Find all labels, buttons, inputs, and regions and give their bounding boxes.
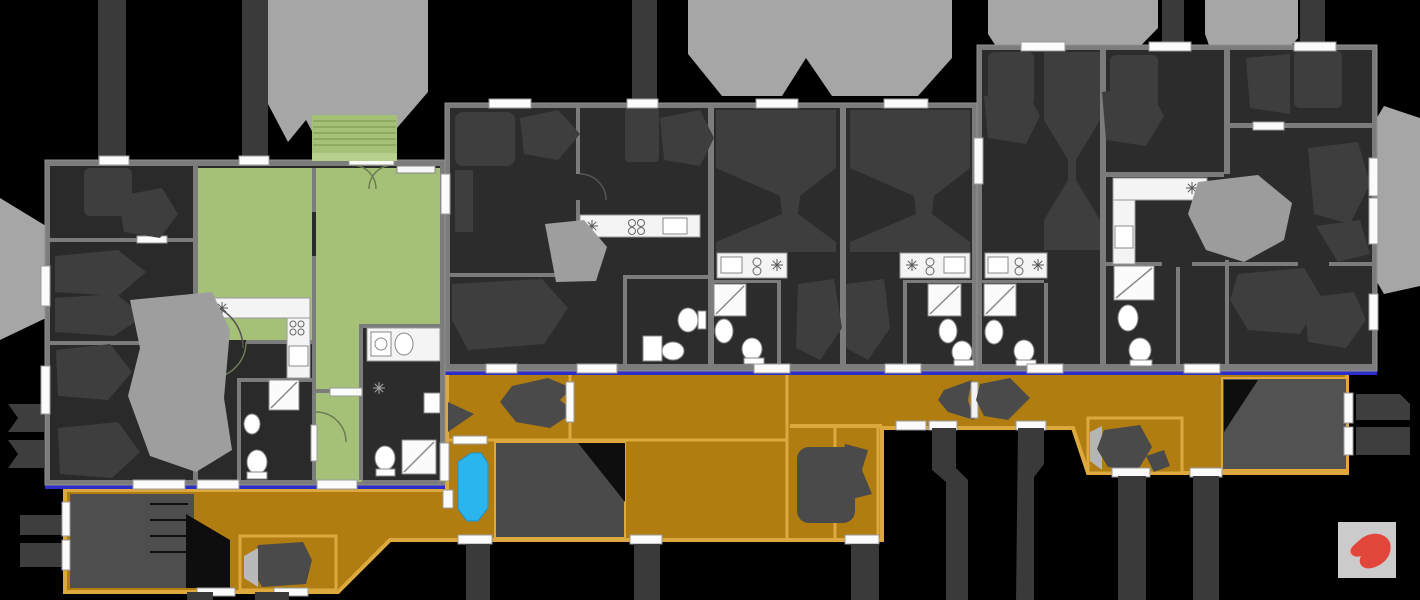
- window: [317, 480, 357, 489]
- wall-seg: [576, 108, 580, 174]
- wall-seg: [1225, 260, 1229, 364]
- balcony-sill: [312, 153, 397, 161]
- window: [489, 99, 531, 108]
- tree-2: [688, 0, 952, 96]
- path-top-5: [1300, 0, 1325, 48]
- wall-seg: [903, 283, 907, 364]
- bed: [625, 108, 659, 162]
- wall-seg: [623, 275, 708, 279]
- window: [197, 480, 239, 489]
- path-top-3: [632, 0, 657, 106]
- path-bottom-6: [932, 428, 968, 600]
- washer: [643, 336, 662, 361]
- window: [1021, 42, 1065, 51]
- deck-window: [896, 421, 926, 430]
- deck-door: [458, 535, 492, 544]
- window: [99, 156, 129, 165]
- wall-seg: [1224, 50, 1230, 174]
- wall-seg: [363, 324, 440, 328]
- window: [1184, 364, 1220, 373]
- toilet-tank: [247, 472, 267, 479]
- toilet-tank: [376, 469, 395, 476]
- wall-cabinet: [424, 393, 440, 413]
- window: [974, 138, 983, 184]
- deck-door: [845, 535, 879, 544]
- window: [884, 99, 928, 108]
- tree-6: [0, 198, 46, 340]
- path-bottom-3: [466, 544, 490, 600]
- path-top-2: [242, 0, 268, 162]
- wall-seg: [1329, 262, 1372, 266]
- deck-door: [453, 436, 487, 444]
- path-bottom-7: [1016, 428, 1044, 600]
- floor-plan-svg: [0, 0, 1420, 600]
- toilet-tank: [698, 311, 706, 329]
- deck-door: [630, 535, 662, 544]
- wall-seg: [903, 280, 975, 283]
- deck-window: [62, 540, 70, 570]
- window: [41, 366, 50, 414]
- wall-seg: [312, 168, 316, 212]
- window: [41, 266, 50, 306]
- window: [1369, 198, 1378, 244]
- window: [1294, 42, 1336, 51]
- deck-window: [1112, 468, 1150, 477]
- wall-seg: [1106, 172, 1224, 177]
- deck-door: [566, 382, 574, 422]
- stub-bottom-left-1: [20, 515, 65, 535]
- path-bottom-9: [1193, 476, 1219, 600]
- grill-blob: [250, 542, 312, 587]
- wall-seg: [50, 238, 193, 242]
- toilet: [678, 308, 698, 332]
- stub-right-1: [1356, 394, 1410, 420]
- wall-seg: [713, 280, 781, 283]
- deck-room-left: [70, 494, 194, 588]
- wall-seg: [777, 283, 781, 364]
- kitchen-sink: [1115, 226, 1133, 248]
- kitchen-sink: [944, 257, 965, 273]
- window: [441, 174, 450, 214]
- window: [1027, 364, 1063, 373]
- door-leaf: [311, 425, 317, 461]
- wall-seg: [1192, 262, 1298, 266]
- toilet-tank: [954, 360, 974, 366]
- fan-icon: [373, 382, 385, 394]
- bed: [1294, 50, 1342, 108]
- path-bottom-5: [851, 544, 879, 600]
- door-leaf: [137, 236, 167, 243]
- window: [627, 99, 658, 108]
- sink: [939, 319, 957, 343]
- window: [1369, 294, 1378, 330]
- shrub-left-1: [8, 404, 44, 432]
- deck-door: [443, 490, 453, 508]
- kitchen-sink: [289, 346, 308, 366]
- shrub-left-2: [8, 440, 44, 468]
- path-bottom-2: [255, 592, 289, 600]
- wall-seg: [359, 324, 363, 480]
- fan-icon: [906, 259, 918, 271]
- sink: [244, 414, 260, 434]
- wall-seg: [623, 279, 627, 364]
- wall-seg: [237, 382, 241, 480]
- window: [486, 364, 517, 373]
- window: [1253, 122, 1284, 130]
- bed: [455, 112, 515, 166]
- toilet: [1014, 340, 1034, 362]
- window: [330, 388, 362, 396]
- wall-seg: [193, 166, 198, 303]
- path-top-4: [1162, 0, 1184, 48]
- path-bottom-8: [1118, 476, 1146, 600]
- toilet: [247, 450, 267, 474]
- wall-seg: [1044, 283, 1048, 364]
- sink: [715, 319, 733, 343]
- window: [577, 364, 617, 373]
- window: [754, 364, 790, 373]
- window: [239, 156, 269, 165]
- path-top-1: [98, 0, 126, 162]
- green-room-b: [316, 168, 440, 324]
- deck-window: [1190, 468, 1222, 477]
- path-bottom-1: [187, 592, 213, 600]
- kitchen-sink: [721, 257, 742, 273]
- sink: [395, 333, 413, 355]
- deck-window: [1344, 393, 1353, 423]
- washer: [371, 332, 391, 356]
- sink: [985, 320, 1003, 344]
- blue-edge-left: [45, 485, 445, 489]
- kitchen-sink: [663, 218, 687, 234]
- kitchen-sink: [988, 257, 1008, 273]
- fan-icon: [1032, 259, 1044, 271]
- stub-right-2: [1356, 427, 1410, 455]
- wardrobe: [455, 170, 473, 232]
- deck-window: [62, 502, 70, 536]
- toilet-tank: [1130, 360, 1152, 366]
- window: [1369, 158, 1378, 196]
- furniture-blob: [1246, 54, 1290, 114]
- wall-seg: [1284, 123, 1372, 128]
- window: [133, 480, 185, 489]
- wall-seg: [1176, 267, 1180, 364]
- window: [1149, 42, 1191, 51]
- toilet: [375, 446, 395, 470]
- bench: [397, 166, 435, 173]
- window: [756, 99, 798, 108]
- window: [440, 443, 449, 481]
- path-bottom-4: [634, 544, 660, 600]
- toilet-tank: [744, 358, 764, 364]
- deck-window: [1344, 427, 1353, 455]
- toilet: [742, 338, 762, 360]
- pond: [458, 453, 488, 521]
- stub-bottom-left-2: [20, 543, 65, 567]
- sink: [1118, 305, 1138, 331]
- window: [885, 364, 921, 373]
- wall-seg: [982, 280, 1044, 283]
- floor-plan-canvas: [0, 0, 1420, 600]
- sink: [662, 342, 684, 360]
- toilet: [1129, 338, 1151, 362]
- wall-seg: [1230, 123, 1254, 128]
- fan-icon: [771, 259, 783, 271]
- green-hall: [316, 324, 362, 482]
